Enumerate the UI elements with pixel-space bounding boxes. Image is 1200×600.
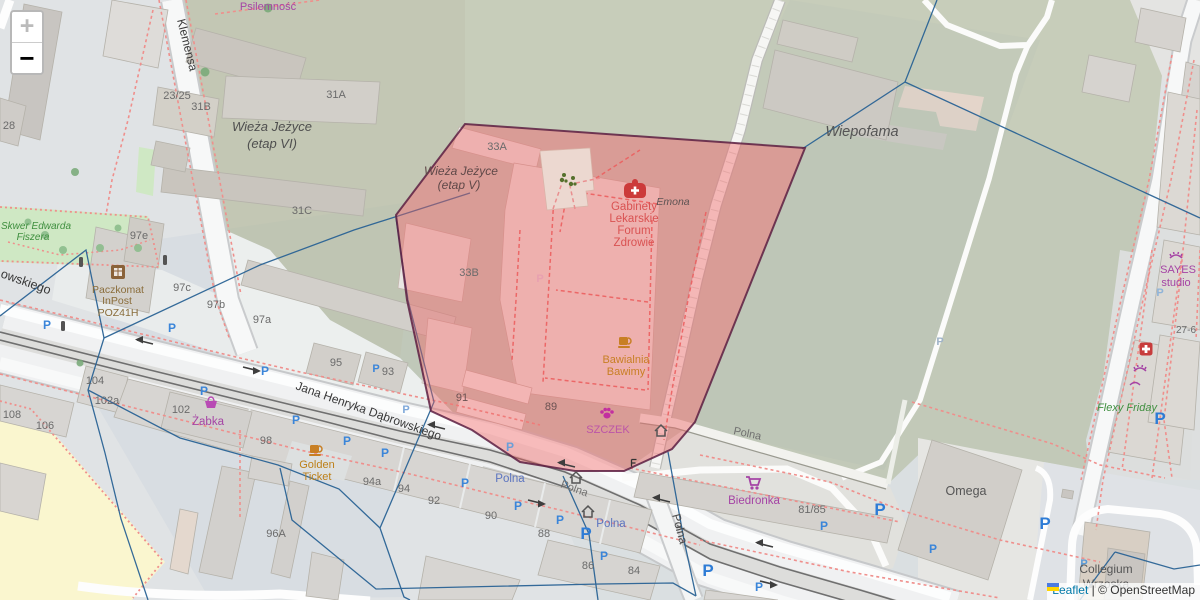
svg-text:Biedronka: Biedronka	[728, 495, 780, 507]
svg-text:106: 106	[36, 420, 54, 432]
svg-text:Emona: Emona	[656, 196, 689, 208]
svg-text:33A: 33A	[487, 141, 507, 153]
svg-text:91: 91	[456, 392, 468, 404]
svg-text:94a: 94a	[363, 476, 382, 488]
svg-text:Wiepofama: Wiepofama	[825, 124, 898, 140]
svg-text:P: P	[200, 384, 208, 398]
svg-text:Gabinety: Gabinety	[611, 201, 657, 213]
svg-text:33B: 33B	[459, 267, 479, 279]
svg-text:P: P	[261, 364, 269, 378]
svg-text:28: 28	[3, 120, 15, 132]
svg-text:97c: 97c	[173, 282, 191, 294]
svg-text:81/85: 81/85	[798, 504, 826, 516]
svg-text:Psilemność: Psilemność	[240, 1, 297, 13]
svg-text:97a: 97a	[253, 314, 272, 326]
svg-text:86: 86	[582, 560, 594, 572]
svg-text:SZCZEK: SZCZEK	[586, 424, 630, 436]
svg-text:P: P	[43, 318, 51, 332]
svg-text:Żabka: Żabka	[192, 415, 225, 428]
svg-text:108: 108	[3, 409, 21, 421]
svg-text:(etap V): (etap V)	[438, 178, 481, 192]
svg-text:89: 89	[545, 401, 557, 413]
svg-text:90: 90	[485, 510, 497, 522]
svg-text:P: P	[929, 542, 937, 556]
svg-text:P: P	[461, 476, 469, 490]
svg-text:P: P	[600, 549, 608, 563]
svg-text:Polna: Polna	[596, 518, 626, 530]
svg-text:P: P	[820, 519, 828, 533]
svg-text:P: P	[936, 336, 943, 348]
svg-text:P: P	[506, 440, 514, 454]
svg-text:P: P	[556, 513, 564, 527]
svg-text:97e: 97e	[130, 230, 148, 242]
svg-text:94: 94	[398, 483, 410, 495]
svg-text:Omega: Omega	[946, 484, 987, 498]
svg-text:(etap VI): (etap VI)	[247, 136, 297, 151]
svg-text:studio: studio	[1161, 277, 1190, 289]
svg-text:98: 98	[260, 435, 272, 447]
svg-text:Flexy Friday: Flexy Friday	[1097, 402, 1158, 414]
svg-text:P: P	[514, 499, 522, 513]
svg-text:P: P	[292, 413, 300, 427]
svg-text:Golden: Golden	[299, 459, 334, 471]
svg-text:27-6: 27-6	[1176, 325, 1196, 336]
svg-text:Lekarskie: Lekarskie	[609, 213, 658, 225]
svg-text:Skwer Edwarda: Skwer Edwarda	[1, 221, 71, 232]
svg-text:P: P	[874, 500, 885, 519]
svg-text:93: 93	[382, 366, 394, 378]
svg-text:88: 88	[538, 528, 550, 540]
svg-text:P: P	[702, 561, 713, 580]
svg-text:P: P	[580, 524, 591, 543]
svg-text:104: 104	[86, 375, 104, 387]
svg-text:Wieża Jeżyce: Wieża Jeżyce	[232, 119, 312, 134]
svg-text:P: P	[381, 446, 389, 460]
svg-text:InPost: InPost	[102, 295, 132, 307]
svg-text:P: P	[168, 321, 176, 335]
svg-text:31A: 31A	[326, 89, 346, 101]
svg-text:POZ41H: POZ41H	[98, 307, 139, 319]
svg-text:Ticket: Ticket	[303, 471, 332, 483]
svg-text:102a: 102a	[95, 395, 120, 407]
svg-text:Fiszera: Fiszera	[17, 232, 50, 243]
svg-text:84: 84	[628, 565, 640, 577]
svg-text:P: P	[402, 404, 409, 416]
svg-text:95: 95	[330, 357, 342, 369]
svg-text:P: P	[1039, 514, 1050, 533]
svg-text:P: P	[536, 273, 543, 285]
svg-text:31C: 31C	[292, 205, 312, 217]
svg-text:96A: 96A	[266, 528, 286, 540]
svg-text:Wieża Jeżyce: Wieża Jeżyce	[424, 164, 498, 178]
svg-text:P: P	[343, 434, 351, 448]
svg-text:Forum: Forum	[617, 225, 650, 237]
svg-text:102: 102	[172, 404, 190, 416]
svg-text:Polna: Polna	[495, 473, 525, 485]
svg-text:Collegium: Collegium	[1079, 562, 1132, 576]
svg-text:23/25: 23/25	[163, 90, 191, 102]
svg-text:Bawialnia: Bawialnia	[602, 354, 650, 366]
svg-text:97b: 97b	[207, 299, 225, 311]
svg-text:P: P	[755, 580, 763, 594]
svg-text:92: 92	[428, 495, 440, 507]
svg-text:Bawimy: Bawimy	[607, 366, 646, 378]
svg-text:Zdrowie: Zdrowie	[614, 237, 655, 249]
svg-text:P: P	[372, 363, 379, 375]
svg-text:SAYES: SAYES	[1160, 264, 1196, 276]
svg-text:31B: 31B	[191, 101, 211, 113]
